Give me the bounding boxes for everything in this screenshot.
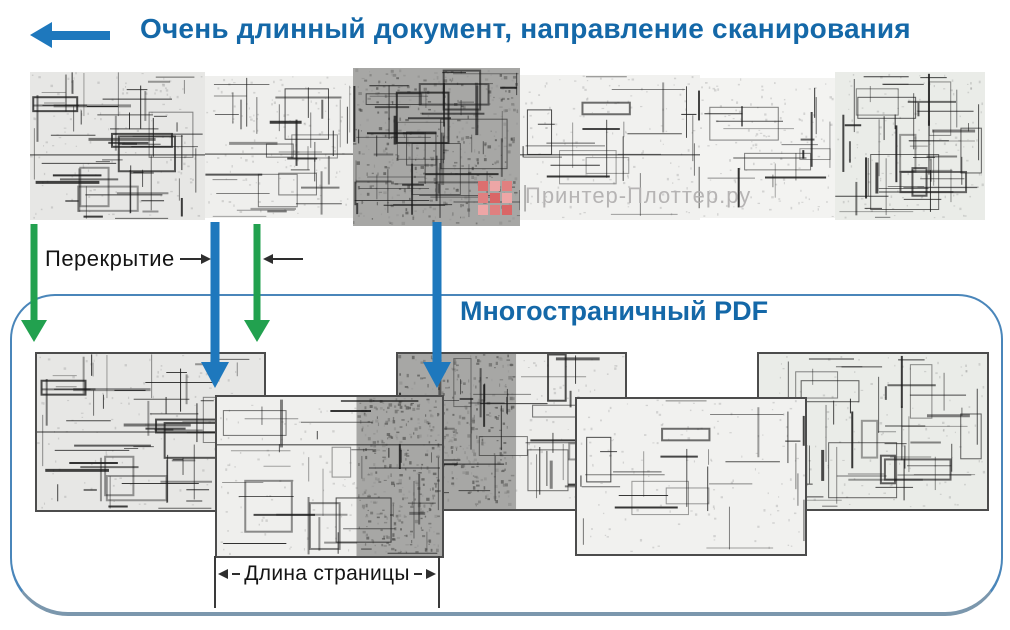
logo-square	[478, 181, 488, 191]
overlap-start-arrow-icon	[244, 224, 270, 342]
arrow-head	[30, 22, 52, 48]
arrow-head	[21, 320, 47, 342]
overlap-label: Перекрытие	[45, 246, 175, 272]
page-length-dimension: Длина страницы	[216, 561, 438, 587]
overlap-pointer-line	[273, 258, 303, 260]
arrow-shaft	[254, 224, 261, 321]
watermark-logo-icon	[478, 181, 514, 217]
scan-strip-segment	[30, 72, 205, 220]
arrow-shaft	[50, 31, 110, 40]
dimension-line-right	[438, 556, 440, 608]
overlap-pointer-line	[180, 258, 202, 260]
watermark-text: Принтер-Плоттер.ру	[525, 183, 751, 209]
overlap-arrow-right-icon	[201, 254, 211, 264]
dimension-arrow-right-icon	[426, 569, 436, 579]
page-length-label: Длина страницы	[244, 562, 409, 586]
pdf-page-4	[575, 397, 807, 556]
overlap-start-arrow-icon	[21, 224, 47, 342]
arrow-head	[201, 362, 229, 388]
logo-square	[478, 205, 488, 215]
logo-square	[490, 181, 500, 191]
logo-square	[502, 193, 512, 203]
page-split-arrow-icon	[201, 222, 229, 388]
pdf-page-2	[215, 395, 444, 558]
logo-square	[502, 181, 512, 191]
dimension-stub	[232, 573, 240, 575]
page-title: Очень длинный документ, направление скан…	[140, 13, 911, 45]
arrow-shaft	[433, 222, 442, 363]
scan-strip-segment	[835, 72, 985, 220]
overlap-arrow-left-icon	[263, 254, 273, 264]
scan-strip-segment	[205, 76, 353, 218]
logo-square	[490, 205, 500, 215]
scan-direction-arrow-icon	[30, 22, 112, 49]
page-split-arrow-icon	[423, 222, 451, 388]
scan-diagram: Очень длинный документ, направление скан…	[0, 0, 1010, 630]
dimension-stub	[414, 573, 422, 575]
arrow-head	[244, 320, 270, 342]
multipage-pdf-title: Многостраничный PDF	[460, 296, 768, 327]
arrow-shaft	[211, 222, 220, 363]
arrow-shaft	[31, 224, 38, 321]
logo-square	[490, 193, 500, 203]
dimension-arrow-left-icon	[218, 569, 228, 579]
arrow-head	[423, 362, 451, 388]
logo-square	[478, 193, 488, 203]
logo-square	[502, 205, 512, 215]
